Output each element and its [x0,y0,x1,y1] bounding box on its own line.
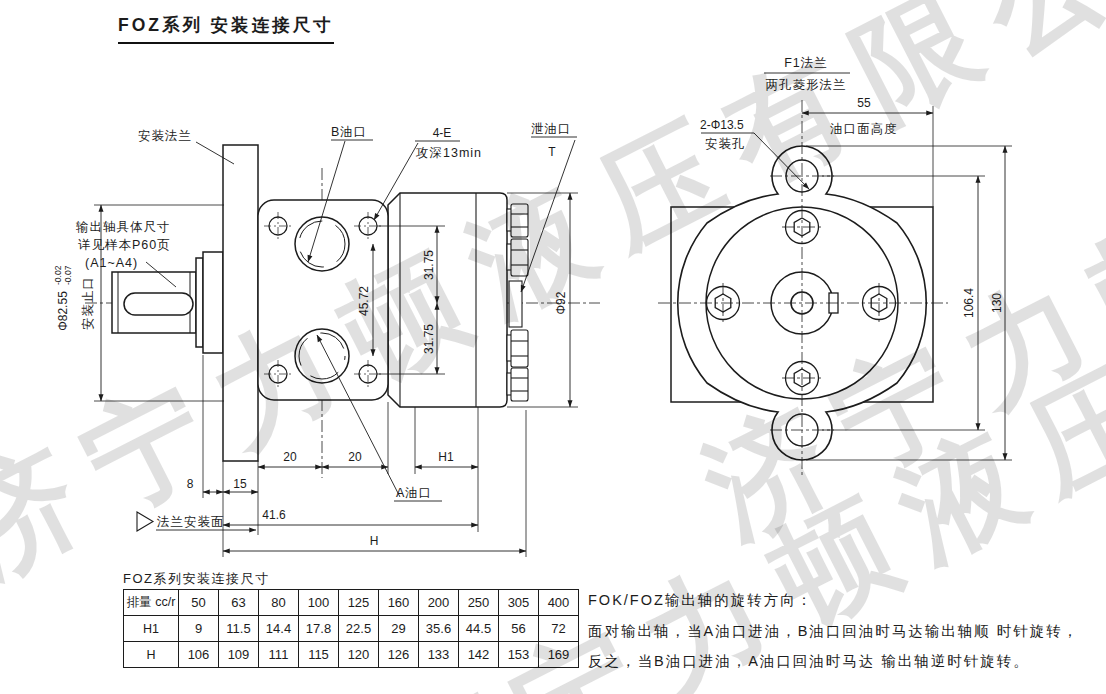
dim-31-75-b: 31.75 [422,324,436,354]
table-cell: 17.8 [299,616,339,642]
catalog-page: FOZ系列 安装连接尺寸 [0,0,1106,694]
rotation-note-line2: 反之，当B油口进油，A油口回油时马达 输出轴逆时针旋转。 [588,652,1030,671]
label-mounting-flange: 安装法兰 [138,129,192,143]
mounting-flange-plate [223,145,258,461]
dim-h1: H1 [438,450,454,464]
table-cell: 111 [259,642,299,668]
table-cell: 109 [219,642,259,668]
table-cell: 126 [379,642,419,668]
label-drain-port: 泄油口 [531,122,572,136]
dim-spigot-tol-lower: -0.07 [63,265,73,285]
table-cell: 29 [379,616,419,642]
row-header-h1: H1 [124,616,179,642]
shaft-note-line1: 输出轴具体尺寸 [76,220,171,234]
dim-20-a: 20 [283,450,297,464]
table-cell: 305 [499,590,539,616]
displacement-table: 排量 cc/r 50 63 80 100 125 160 200 250 305… [123,589,579,668]
table-row: 排量 cc/r 50 63 80 100 125 160 200 250 305… [124,590,579,616]
dim-20-b: 20 [348,450,362,464]
left-view [85,137,600,557]
dim-h: H [370,534,379,548]
table-cell: 9 [179,616,219,642]
rear-plugs [507,204,528,401]
table-cell: 200 [419,590,459,616]
table-row: H 106 109 111 115 120 126 133 142 153 16… [124,642,579,668]
motor-body [388,193,507,407]
table-cell: 80 [259,590,299,616]
label-f1-flange: F1法兰 [784,56,828,70]
rotation-note-line1: 面对输出轴，当A油口进油，B油口回油时马达输出轴顺 时针旋转， [588,622,1079,641]
rotation-note-title: FOK/FOZ输出轴的旋转方向： [588,591,813,610]
table-cell: 115 [299,642,339,668]
table-cell: 250 [459,590,499,616]
label-b-port: B油口 [331,125,367,139]
shaft-keyway [124,293,193,315]
label-port-face-height: 油口面高度 [829,122,898,136]
shaft-note-line3: (A1~A4) [85,256,138,270]
table-cell: 120 [339,642,379,668]
datum-triangle-icon [137,512,153,531]
table-cell: 35.6 [419,616,459,642]
table-cell: 160 [379,590,419,616]
dim-106-4: 106.4 [962,288,976,318]
dim-spigot-diameter: Φ82.55 [56,291,70,331]
label-drain-t: T [548,145,556,159]
table-cell: 153 [499,642,539,668]
dim-31-75-a: 31.75 [422,250,436,280]
dim-8: 8 [187,477,194,491]
table-cell: 100 [299,590,339,616]
table-cell: 44.5 [459,616,499,642]
table-cell: 400 [539,590,579,616]
label-4e: 4-E [433,126,452,140]
label-mount-holes-dia: 2-Φ13.5 [700,118,744,132]
label-flange-face: 法兰安装面 [156,515,225,529]
table-cell: 63 [219,590,259,616]
dim-130: 130 [990,293,1004,313]
dim-41-6: 41.6 [262,508,286,522]
table-cell: 72 [539,616,579,642]
table-cell: 133 [419,642,459,668]
label-diamond-flange: 两孔菱形法兰 [766,78,847,92]
row-header-displacement: 排量 cc/r [124,590,179,616]
dim-spigot-tol-upper: -0.02 [53,265,63,285]
shaft-note-line2: 详见样本P60页 [78,238,171,252]
table-cell: 125 [339,590,379,616]
label-mount-holes: 安装孔 [705,137,746,151]
table-cell: 142 [459,642,499,668]
label-a-port: A油口 [396,486,432,500]
dim-92: Φ92 [554,291,568,314]
table-cell: 106 [179,642,219,668]
page-title: FOZ系列 安装连接尺寸 [118,13,334,44]
label-tap-depth: 攻深13min [415,146,482,160]
dim-15: 15 [233,477,247,491]
row-header-h: H [124,642,179,668]
dim-55: 55 [857,96,871,110]
label-spigot: 安装止口 [81,276,95,330]
table-row: H1 9 11.5 14.4 17.8 22.5 29 35.6 44.5 56… [124,616,579,642]
table-cell: 11.5 [219,616,259,642]
table-title: FOZ系列安装连接尺寸 [123,570,270,588]
drain-port-fitting [509,281,522,327]
table-cell: 50 [179,590,219,616]
table-cell: 56 [499,616,539,642]
table-cell: 14.4 [259,616,299,642]
dim-45-72: 45.72 [357,286,371,316]
table-cell: 169 [539,642,579,668]
table-cell: 22.5 [339,616,379,642]
